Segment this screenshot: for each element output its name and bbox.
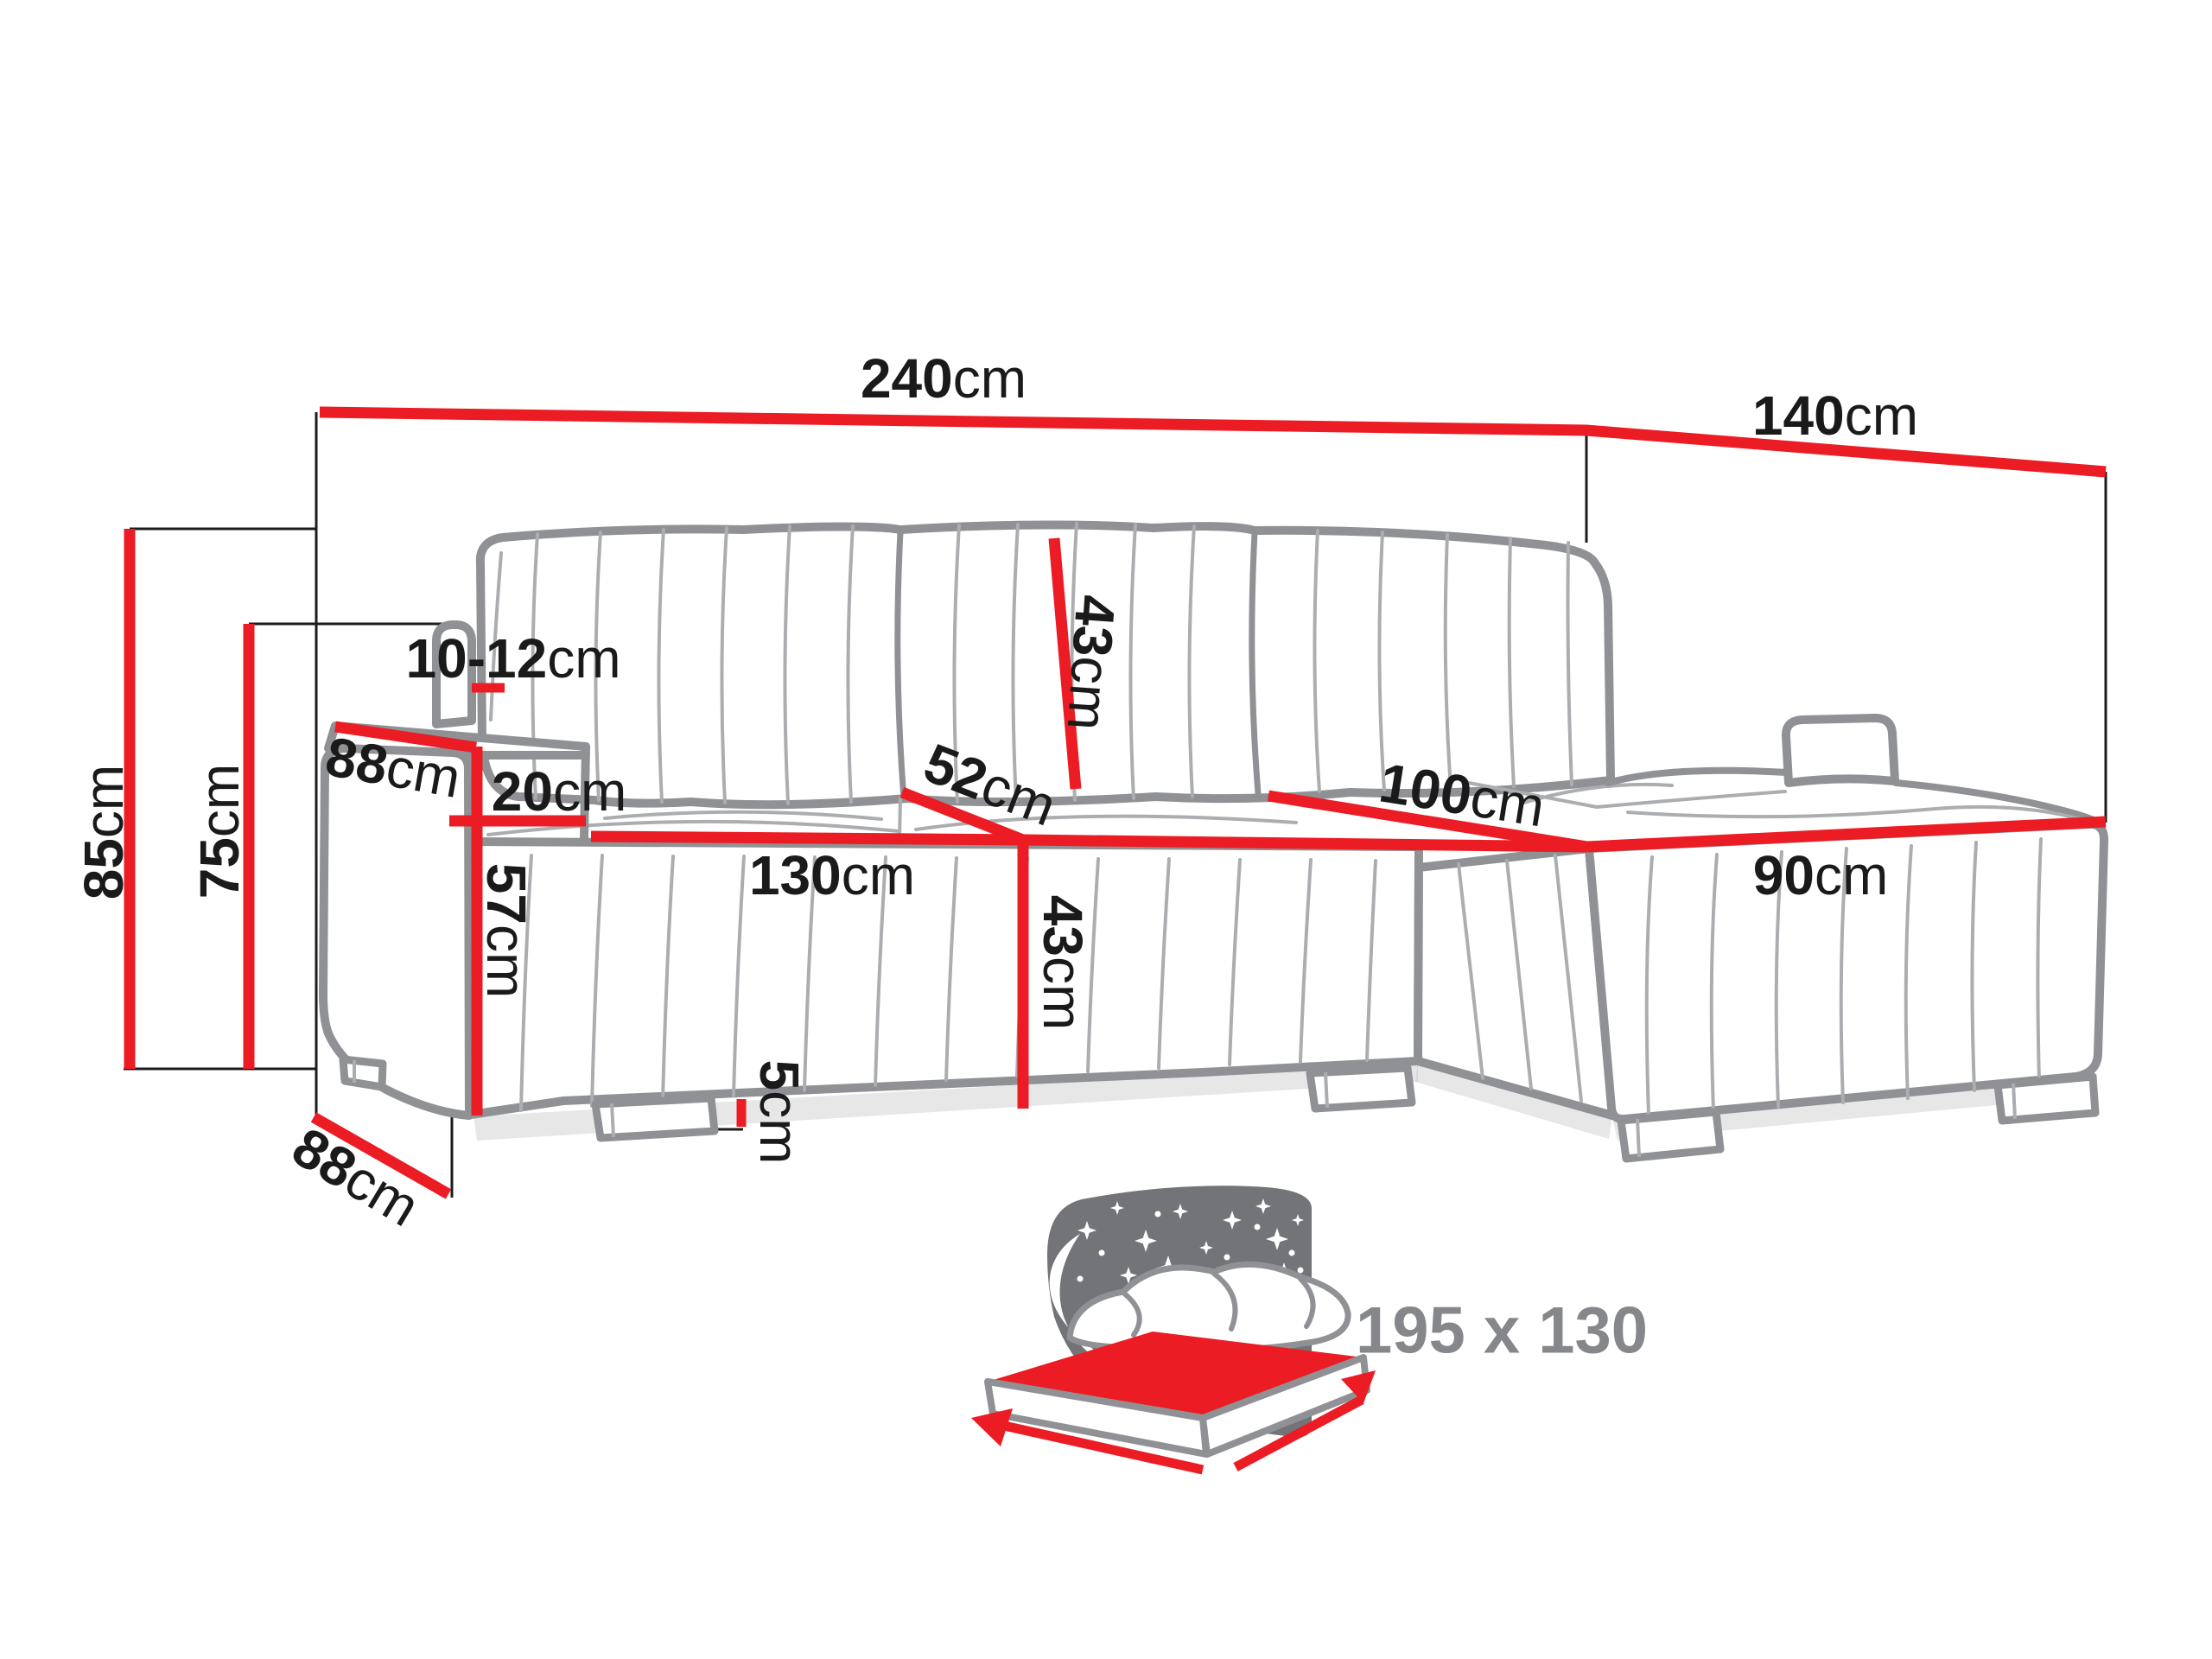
dim-base-front-height-label: 57cm bbox=[475, 863, 537, 999]
dim-leg-height-label: 5cm bbox=[748, 1060, 810, 1165]
dim-total-width-label: 240cm bbox=[861, 347, 1027, 410]
diagram-canvas: 240cm 140cm 85cm 75cm 10-12cm 88cm 20cm … bbox=[0, 0, 2212, 1659]
sofa-dimension-diagram: 240cm 140cm 85cm 75cm 10-12cm 88cm 20cm … bbox=[0, 0, 2212, 1659]
sleeping-area-label: 195 x 130 bbox=[1356, 1294, 1648, 1368]
dim-seat-width-label: 130cm bbox=[749, 844, 915, 906]
dim-backrest-gap-label: 10-12cm bbox=[406, 627, 621, 690]
dim-armrest-height-label: 75cm bbox=[188, 764, 251, 899]
dim-backrest-height-label: 43cm bbox=[1056, 593, 1128, 732]
dim-total-depth-label: 140cm bbox=[1752, 385, 1918, 447]
dim-chaise-width-label: 90cm bbox=[1753, 844, 1889, 906]
right-armrest bbox=[1786, 718, 1895, 783]
dim-base-depth-label: 88cm bbox=[282, 1116, 429, 1238]
dim-total-height-label: 85cm bbox=[73, 765, 135, 900]
dim-armrest-width-label: 20cm bbox=[492, 760, 627, 823]
sleeping-function-pictogram: 195 x 130 bbox=[971, 1185, 1648, 1470]
length-arrowhead-icon bbox=[971, 1408, 1013, 1446]
fold-out-bed-icon bbox=[971, 1264, 1376, 1470]
dim-seat-height-label: 43cm bbox=[1032, 895, 1094, 1031]
